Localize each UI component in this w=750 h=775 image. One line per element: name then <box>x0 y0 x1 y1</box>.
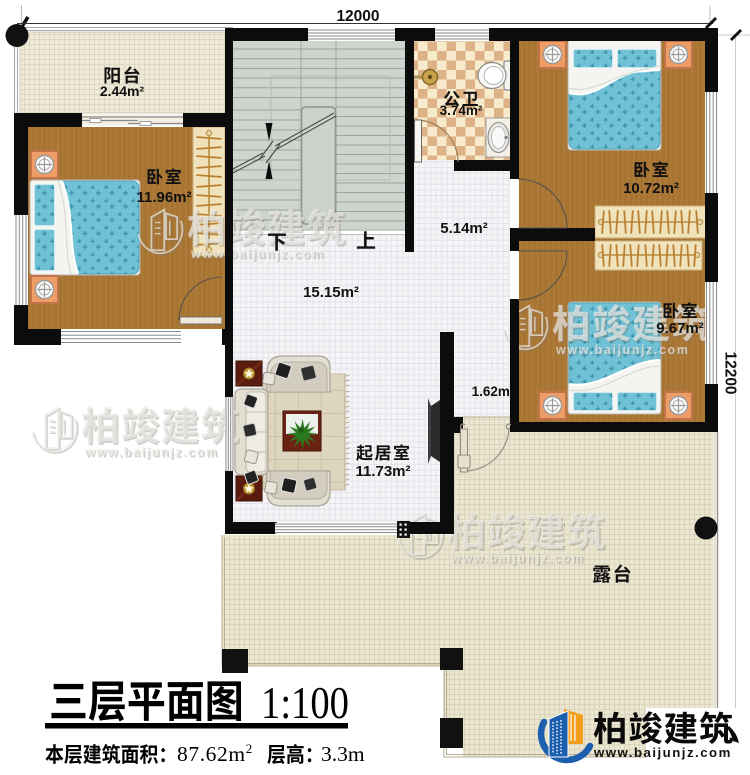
svg-text:15.15m²: 15.15m² <box>303 284 359 301</box>
svg-text:1.62m²: 1.62m² <box>472 384 515 399</box>
svg-text:www.baijunjz.com: www.baijunjz.com <box>84 445 218 459</box>
svg-text:1:100: 1:100 <box>261 677 349 728</box>
svg-text:www.baijunjz.com: www.baijunjz.com <box>555 343 689 357</box>
svg-text:87.62m2: 87.62m2 <box>177 741 253 766</box>
svg-text:3.3m: 3.3m <box>321 742 365 766</box>
svg-text:www.baijunjz.com: www.baijunjz.com <box>450 551 584 565</box>
svg-text:3.74m²: 3.74m² <box>440 103 483 118</box>
svg-text:www.baijunjz.com: www.baijunjz.com <box>593 745 732 760</box>
svg-text:12200: 12200 <box>722 351 739 394</box>
svg-text:2.44m²: 2.44m² <box>100 83 145 99</box>
svg-text:10.72m²: 10.72m² <box>623 180 679 197</box>
svg-text:9.67m²: 9.67m² <box>656 320 704 337</box>
svg-text:12000: 12000 <box>336 8 379 25</box>
svg-text:11.73m²: 11.73m² <box>355 463 410 480</box>
svg-text:www.baijunjz.com: www.baijunjz.com <box>190 247 324 261</box>
svg-text:5.14m²: 5.14m² <box>440 220 488 237</box>
svg-text:11.96m²: 11.96m² <box>136 189 191 206</box>
